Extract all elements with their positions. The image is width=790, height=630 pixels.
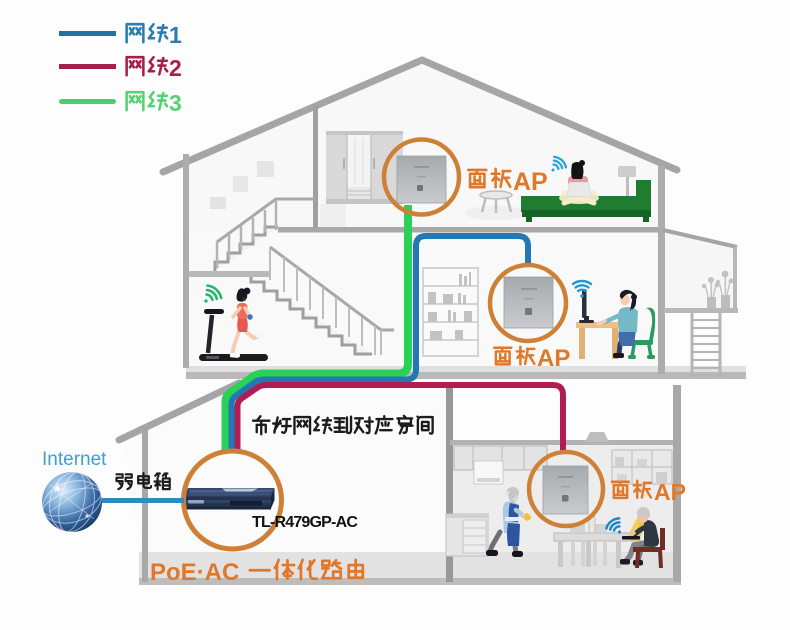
- svg-text:TL-R479GP-AC: TL-R479GP-AC: [252, 514, 358, 531]
- svg-text:AP: AP: [654, 479, 686, 505]
- svg-text:AP: AP: [513, 168, 548, 196]
- svg-text:Internet: Internet: [42, 449, 107, 470]
- svg-text:AP: AP: [537, 345, 570, 372]
- svg-text:3: 3: [169, 90, 182, 116]
- svg-text:2: 2: [169, 55, 182, 81]
- svg-text:PoE·AC: PoE·AC: [150, 559, 239, 586]
- svg-text:1: 1: [169, 22, 182, 48]
